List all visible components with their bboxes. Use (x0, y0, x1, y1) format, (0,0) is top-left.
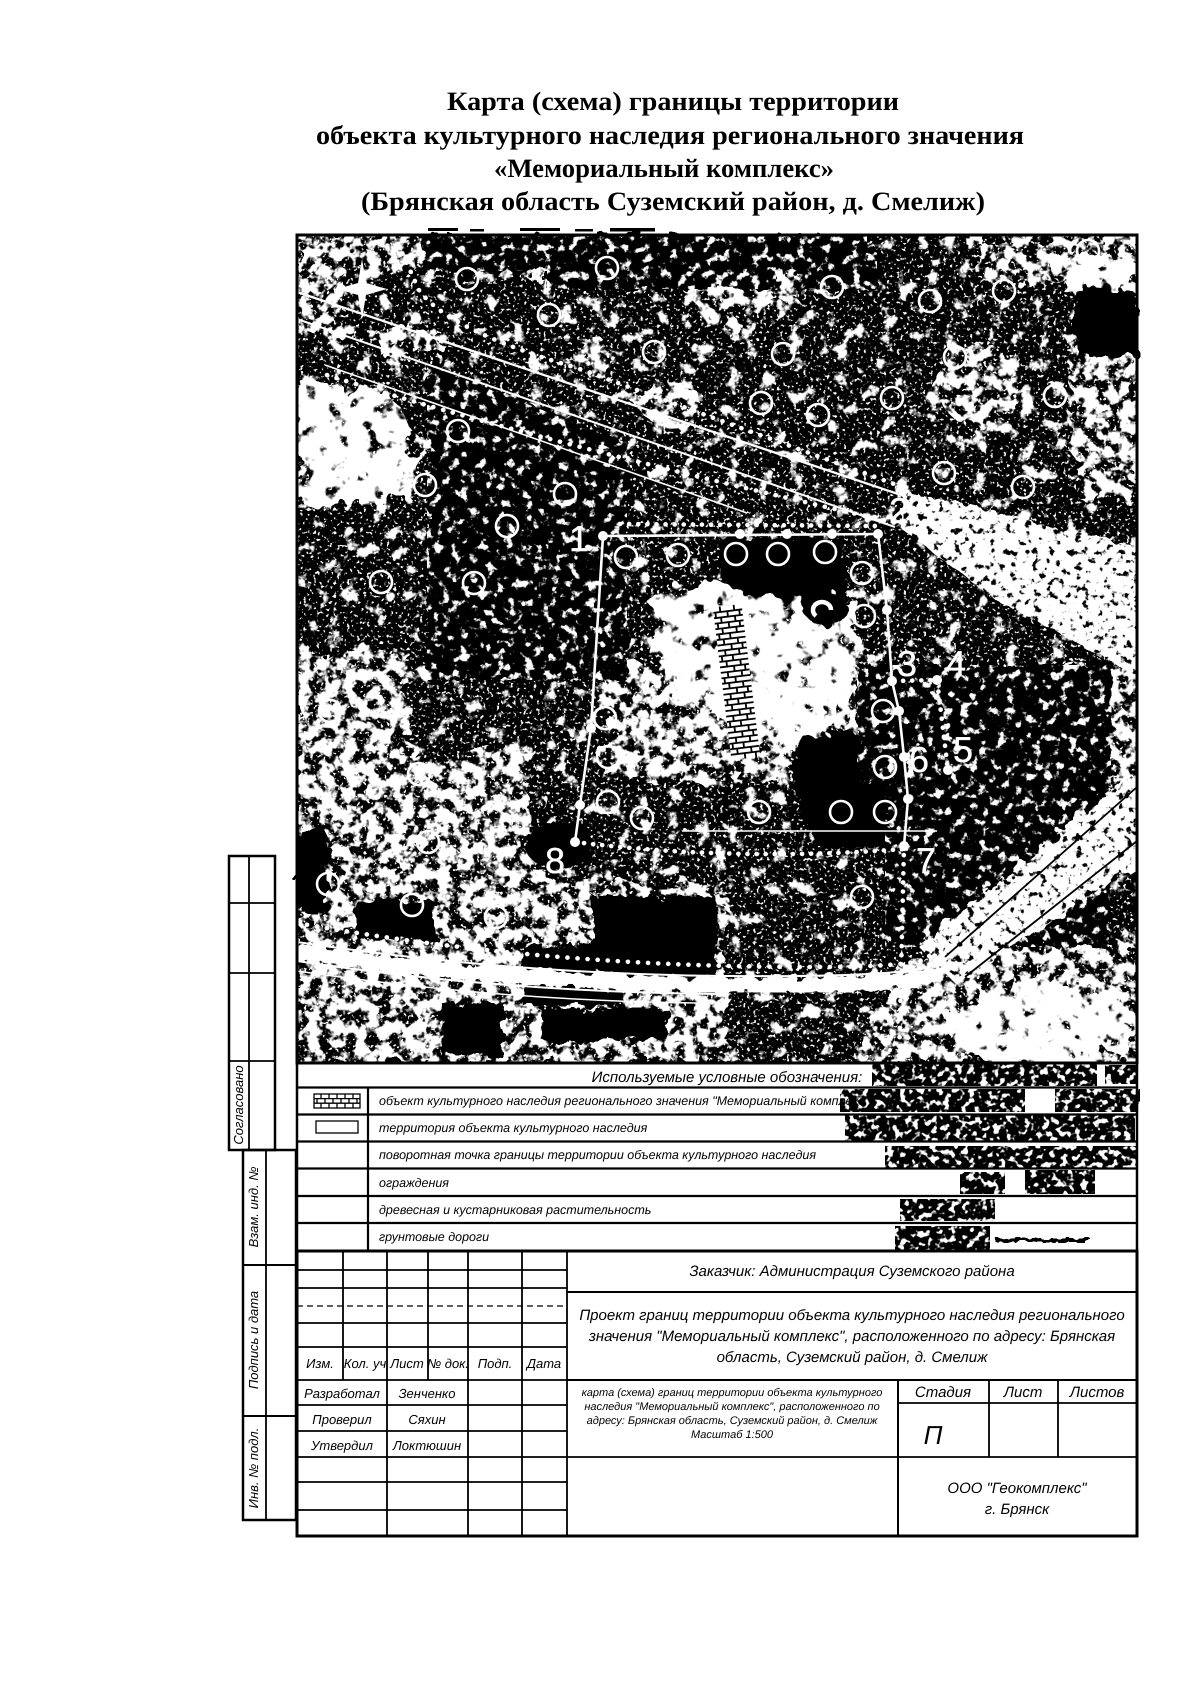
svg-text:«Мемориальный комплекс»: «Мемориальный комплекс» (494, 153, 834, 183)
svg-text:Кол. уч: Кол. уч (344, 1356, 387, 1371)
svg-text:Подп.: Подп. (478, 1356, 513, 1371)
svg-text:Проверил: Проверил (312, 1412, 372, 1427)
svg-text:Используемые условные обозначе: Используемые условные обозначения: (592, 1069, 863, 1086)
svg-text:поворотная точка границы терри: поворотная точка границы территории объе… (379, 1148, 816, 1162)
svg-text:Проект границ территории объек: Проект границ территории объекта культур… (579, 1307, 1124, 1324)
svg-text:Лист: Лист (1003, 1384, 1043, 1401)
svg-text:7: 7 (916, 840, 936, 881)
svg-text:область, Суземский район, д. С: область, Суземский район, д. Смелиж (717, 1349, 989, 1366)
svg-text:ООО "Геокомплекс": ООО "Геокомплекс" (947, 1480, 1087, 1497)
svg-text:Зенченко: Зенченко (399, 1386, 456, 1401)
svg-text:объекта культурного наследия р: объекта культурного наследия регионально… (316, 120, 1024, 150)
svg-text:Карта (схема) границы территор: Карта (схема) границы территории (447, 86, 899, 116)
svg-text:1: 1 (569, 518, 589, 559)
svg-text:Локтюшин: Локтюшин (392, 1438, 461, 1453)
svg-text:Изм.: Изм. (306, 1356, 334, 1371)
svg-text:грунтовые дороги: грунтовые дороги (379, 1230, 489, 1244)
svg-text:8: 8 (545, 840, 565, 881)
svg-text:№ док.: № док. (427, 1356, 469, 1371)
svg-text:5: 5 (953, 729, 973, 770)
svg-text:Дата: Дата (525, 1356, 561, 1371)
svg-text:значения "Мемориальный комплек: значения "Мемориальный комплекс", распол… (588, 1328, 1115, 1345)
svg-text:адресу: Брянская область, Сузе: адресу: Брянская область, Суземский райо… (587, 1415, 878, 1427)
svg-text:Масштаб 1:500: Масштаб 1:500 (691, 1429, 774, 1441)
svg-text:4: 4 (946, 643, 966, 684)
svg-text:(Брянская область Суземский ра: (Брянская область Суземский район, д. См… (361, 186, 985, 216)
svg-text:П: П (924, 1420, 943, 1450)
svg-text:Сяхин: Сяхин (408, 1412, 445, 1427)
svg-text:2: 2 (889, 490, 909, 531)
svg-text:Разработал: Разработал (304, 1386, 380, 1401)
svg-text:Согласовано: Согласовано (231, 1065, 246, 1144)
svg-text:6: 6 (909, 739, 929, 780)
svg-text:Стадия: Стадия (915, 1384, 971, 1401)
svg-text:Заказчик: Администрация Суземс: Заказчик: Администрация Суземского район… (689, 1263, 1014, 1280)
svg-text:древесная и кустарниковая раст: древесная и кустарниковая растительность (379, 1203, 651, 1217)
svg-text:Подпись и дата: Подпись и дата (246, 1291, 261, 1389)
svg-text:Инв. № подл.: Инв. № подл. (246, 1428, 261, 1509)
svg-text:ограждения: ограждения (379, 1176, 449, 1190)
svg-text:наследия "Мемориальный комплек: наследия "Мемориальный комплекс", распол… (584, 1401, 879, 1413)
svg-text:территория объекта культурного: территория объекта культурного наследия (379, 1121, 648, 1135)
svg-text:г. Брянск: г. Брянск (985, 1501, 1050, 1518)
svg-text:Листов: Листов (1069, 1384, 1125, 1401)
svg-text:3: 3 (897, 643, 917, 684)
svg-text:Утвердил: Утвердил (310, 1438, 374, 1453)
svg-text:Лист: Лист (389, 1356, 424, 1371)
svg-text:объект культурного наследия ре: объект культурного наследия региональног… (379, 1094, 870, 1108)
svg-text:Взам. инд. №: Взам. инд. № (246, 1167, 261, 1248)
svg-text:карта (схема) границ территори: карта (схема) границ территории объекта … (582, 1387, 883, 1399)
